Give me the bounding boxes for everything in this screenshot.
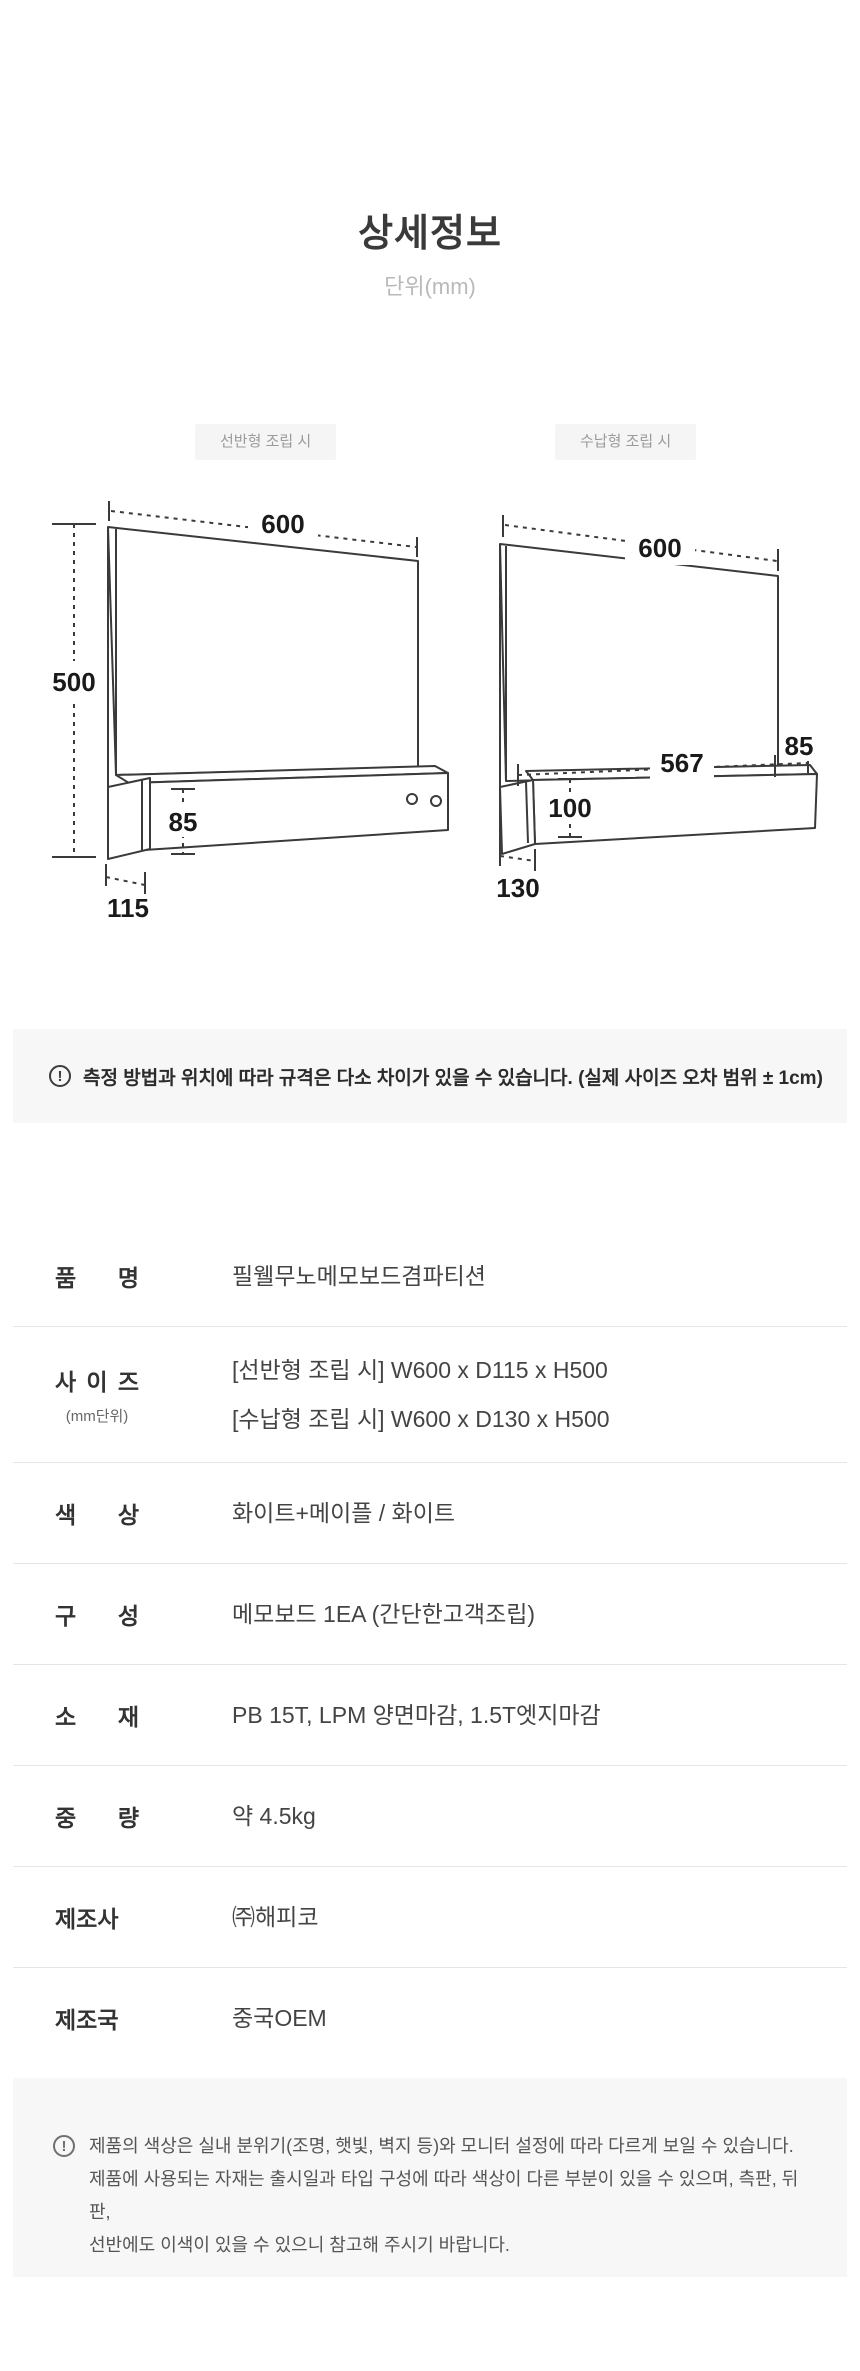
shelf-panel-drawing [108, 527, 448, 859]
dim-shelf-width: 600 [261, 509, 304, 539]
dim-storage-side-gap: 85 [785, 731, 814, 761]
measurement-notice-bar: ! 측정 방법과 위치에 따라 규격은 다소 차이가 있을 수 있습니다. (실… [13, 1029, 847, 1123]
exclamation-circle-icon: ! [49, 1065, 71, 1087]
disclaimer-line-1: 제품의 색상은 실내 분위기(조명, 햇빛, 벽지 등)와 모니터 설정에 따라… [89, 2130, 817, 2163]
storage-type-badge: 수납형 조립 시 [555, 424, 696, 460]
spec-value-product-name: 필웰무노메모보드겸파티션 [232, 1259, 486, 1294]
dim-storage-depth: 130 [496, 873, 539, 903]
dim-storage-width: 600 [638, 533, 681, 563]
dim-shelf-height: 500 [52, 667, 95, 697]
dim-shelf-front-height: 85 [169, 807, 198, 837]
spec-label-product-name: 품 명 [55, 1259, 139, 1293]
exclamation-circle-icon: ! [53, 2135, 75, 2157]
disclaimer-line-3: 선반에도 이색이 있을 수 있으니 참고해 주시기 바랍니다. [89, 2229, 817, 2262]
page-title: 상세정보 [0, 202, 860, 257]
spec-value-composition: 메모보드 1EA (간단한고객조립) [232, 1597, 535, 1632]
disclaimer-line-2: 제품에 사용되는 자재는 출시일과 타입 구성에 따라 색상이 다른 부분이 있… [89, 2163, 817, 2229]
dim-storage-inner-width: 567 [660, 748, 703, 778]
unit-label: 단위(mm) [0, 269, 860, 301]
spec-sublabel-size-unit: (mm단위) [55, 1405, 139, 1426]
spec-row-composition: 구 성 메모보드 1EA (간단한고객조립) [13, 1564, 847, 1665]
spec-row-material: 소 재 PB 15T, LPM 양면마감, 1.5T엣지마감 [13, 1665, 847, 1766]
spec-value-material: PB 15T, LPM 양면마감, 1.5T엣지마감 [232, 1698, 601, 1733]
spec-row-country: 제조국 중국OEM [13, 1968, 847, 2068]
spec-value-weight: 약 4.5kg [232, 1799, 316, 1834]
dim-storage-box-height: 100 [548, 793, 591, 823]
spec-label-country: 제조국 [55, 2001, 139, 2035]
spec-label-composition: 구 성 [55, 1597, 139, 1631]
spec-label-weight: 중 량 [55, 1799, 139, 1833]
detail-header: 상세정보 단위(mm) [0, 0, 860, 301]
shelf-type-badge: 선반형 조립 시 [195, 424, 336, 460]
spec-label-color: 색 상 [55, 1496, 139, 1530]
spec-row-manufacturer: 제조사 ㈜해피코 [13, 1867, 847, 1968]
storage-assembly-diagram: 600 567 85 100 130 [480, 499, 840, 919]
spec-value-size-storage: [수납형 조립 시] W600 x D130 x H500 [232, 1402, 610, 1437]
spec-row-product-name: 품 명 필웰무노메모보드겸파티션 [13, 1226, 847, 1327]
dimension-diagrams-section: 선반형 조립 시 수납형 조립 시 [0, 301, 860, 1029]
spec-value-country: 중국OEM [232, 2001, 327, 2036]
spec-label-size: 사 이 즈 [55, 1363, 139, 1397]
spec-row-weight: 중 량 약 4.5kg [13, 1766, 847, 1867]
shelf-assembly-diagram: 600 500 85 115 [50, 499, 450, 929]
measurement-notice-text: 측정 방법과 위치에 따라 규격은 다소 차이가 있을 수 있습니다. (실제 … [83, 1063, 823, 1090]
color-disclaimer-box: ! 제품의 색상은 실내 분위기(조명, 햇빛, 벽지 등)와 모니터 설정에 … [13, 2078, 847, 2277]
spec-table: 품 명 필웰무노메모보드겸파티션 사 이 즈 (mm단위) [선반형 조립 시]… [13, 1226, 847, 2068]
spec-row-size: 사 이 즈 (mm단위) [선반형 조립 시] W600 x D115 x H5… [13, 1327, 847, 1463]
spec-value-color: 화이트+메이플 / 화이트 [232, 1496, 455, 1531]
spec-label-material: 소 재 [55, 1698, 139, 1732]
spec-label-manufacturer: 제조사 [55, 1900, 139, 1934]
spec-value-size-shelf: [선반형 조립 시] W600 x D115 x H500 [232, 1353, 610, 1388]
dim-shelf-depth: 115 [107, 893, 149, 923]
spec-value-manufacturer: ㈜해피코 [232, 1900, 318, 1935]
spec-row-color: 색 상 화이트+메이플 / 화이트 [13, 1463, 847, 1564]
